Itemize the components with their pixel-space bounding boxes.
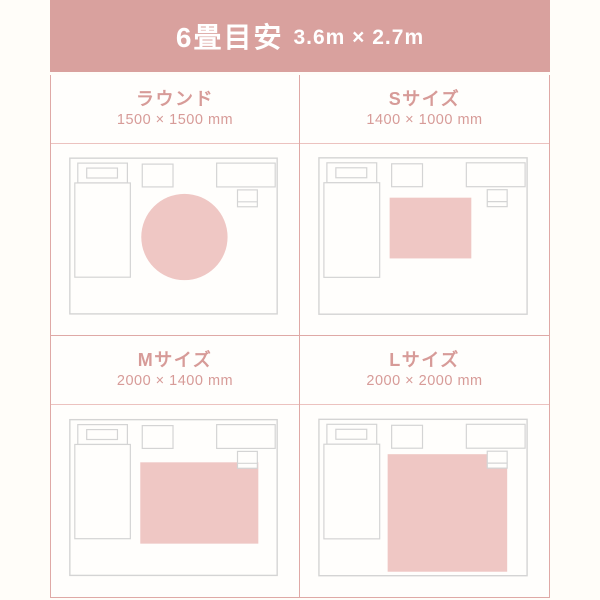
bed-body [324, 183, 380, 278]
chair [487, 190, 507, 207]
pillow [87, 168, 118, 178]
pillow [87, 430, 118, 440]
room-layout-diagram [300, 144, 549, 335]
bed-body [75, 444, 131, 538]
room-layout-diagram [300, 405, 549, 597]
side-table [142, 164, 173, 187]
room-size-title: 6畳目安 [176, 16, 284, 56]
room-layout-diagram [51, 405, 299, 597]
size-option-m: Mサイズ 2000 × 1400 mm [51, 336, 300, 597]
option-dimensions: 1400 × 1000 mm [366, 113, 482, 128]
option-header: ラウンド 1500 × 1500 mm [51, 75, 299, 144]
side-table [392, 425, 423, 448]
header-banner: 6畳目安 3.6m × 2.7m [50, 0, 550, 72]
chair [487, 451, 507, 468]
rug-rectangle [388, 454, 508, 572]
option-name: Lサイズ [389, 351, 459, 369]
size-option-l: Lサイズ 2000 × 2000 mm [300, 336, 549, 597]
option-name: ラウンド [136, 90, 214, 108]
option-dimensions: 2000 × 2000 mm [366, 374, 482, 389]
size-option-round: ラウンド 1500 × 1500 mm [51, 75, 300, 336]
option-dimensions: 2000 × 1400 mm [117, 374, 233, 389]
desk [217, 425, 276, 449]
size-options-grid: ラウンド 1500 × 1500 mm Sサイズ 1400 × 1000 mm … [50, 75, 550, 598]
room-diagram-l [300, 405, 549, 597]
rug-size-guide: 6畳目安 3.6m × 2.7m ラウンド 1500 × 1500 mm Sサイ… [0, 0, 600, 600]
option-name: Mサイズ [138, 351, 212, 369]
room-diagram-round [51, 144, 299, 335]
option-header: Mサイズ 2000 × 1400 mm [51, 336, 299, 405]
desk [466, 163, 525, 187]
chair [237, 451, 257, 468]
side-table [142, 426, 173, 449]
size-option-s: Sサイズ 1400 × 1000 mm [300, 75, 549, 336]
desk [466, 424, 525, 448]
room-diagram-s [300, 144, 549, 335]
option-name: Sサイズ [389, 90, 460, 108]
desk [217, 163, 276, 187]
room-diagram-m [51, 405, 299, 597]
bed-body [75, 183, 131, 277]
bed-body [324, 444, 380, 539]
pillow [336, 429, 367, 439]
pillow [336, 168, 367, 178]
side-table [392, 164, 423, 187]
rug-round [141, 194, 227, 280]
option-header: Sサイズ 1400 × 1000 mm [300, 75, 549, 144]
option-dimensions: 1500 × 1500 mm [117, 113, 233, 128]
rug-rectangle [390, 198, 472, 259]
option-header: Lサイズ 2000 × 2000 mm [300, 336, 549, 405]
chair [237, 190, 257, 207]
rug-rectangle [140, 462, 258, 543]
room-dimensions: 3.6m × 2.7m [293, 22, 424, 50]
room-layout-diagram [51, 144, 299, 335]
